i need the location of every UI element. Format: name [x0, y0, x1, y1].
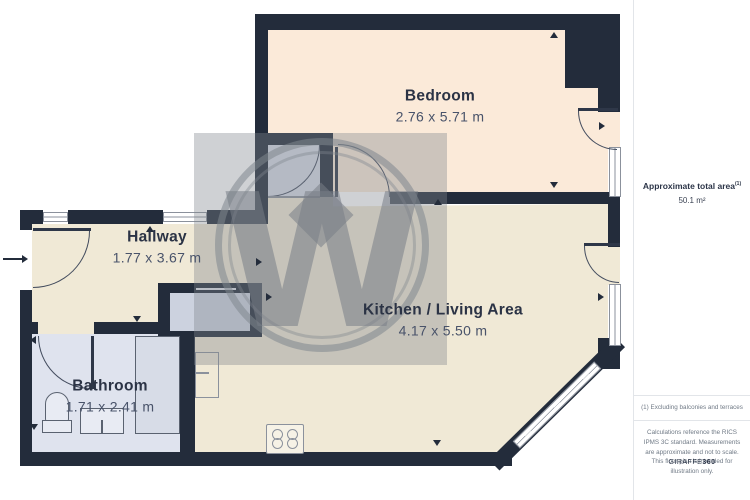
wall-closet-right — [320, 145, 333, 197]
wall-left-outer-lower — [20, 290, 32, 466]
marker-bedroom-left — [260, 120, 266, 128]
toilet-tank — [42, 420, 72, 433]
brand-suffix: 360 — [702, 459, 715, 466]
wall-bedroom-topright-block — [565, 14, 620, 88]
sidebar-divider-2 — [634, 420, 750, 421]
total-area-label: Approximate total area(1) — [634, 181, 750, 191]
marker-kitchen-bottom — [433, 440, 441, 446]
hallway-label: Hallway 1.77 x 3.67 m — [113, 229, 202, 266]
info-sidebar: Approximate total area(1) 50.1 m² (1) Ex… — [633, 0, 750, 500]
bedroom-window — [609, 147, 621, 197]
kitchen-label: Kitchen / Living Area 4.17 x 5.50 m — [363, 302, 523, 339]
wall-closet-top — [255, 133, 333, 145]
bathroom-dimensions: 1.71 x 2.41 m — [66, 399, 155, 415]
kitchen-window — [609, 284, 621, 346]
marker-bathroom-left — [30, 336, 36, 344]
marker-bedroom-right — [599, 122, 605, 130]
wall-left-outer-upper — [20, 210, 32, 230]
sidebar-footnote: (1) Excluding balconies and terraces — [634, 404, 750, 411]
closet-threshold-line — [268, 196, 320, 198]
hallway-window-small — [43, 212, 68, 222]
marker-kitchen-left-2 — [266, 293, 272, 301]
bedroom-name: Bedroom — [396, 88, 485, 106]
hob-burner — [272, 438, 283, 449]
sidebar-disclaimer: Calculations reference the RICS IPMS 3C … — [634, 428, 750, 477]
wall-bottom — [20, 452, 512, 466]
hob-burner — [287, 438, 298, 449]
brand-logo: GIRAFFE360 — [634, 459, 750, 466]
hallway-name: Hallway — [113, 229, 202, 247]
bathroom-label: Bathroom 1.71 x 2.41 m — [66, 378, 155, 415]
kitchen-name: Kitchen / Living Area — [363, 302, 523, 320]
marker-kitchen-right — [598, 293, 604, 301]
wall-hallway-top-b — [68, 210, 163, 224]
total-area-value: 50.1 m² — [634, 196, 750, 205]
bathroom-door-threshold — [38, 322, 94, 334]
fridge-unit — [195, 352, 219, 398]
floorplan-page: { "rooms": { "bedroom": { "name": "Bedro… — [0, 0, 750, 500]
wall-bathroom-kitchen — [180, 322, 195, 455]
kitchen-dimensions: 4.17 x 5.50 m — [363, 323, 523, 339]
entrance-arrow-icon — [22, 255, 28, 263]
hallway-dimensions: 1.77 x 3.67 m — [113, 250, 202, 266]
marker-bedroom-top — [550, 32, 558, 38]
total-area-superscript: (1) — [735, 181, 741, 187]
hallway-window-large — [163, 212, 207, 222]
marker-kitchen-left — [256, 258, 262, 266]
marker-bedroom-bottom — [550, 182, 558, 188]
entrance-arrow-line — [3, 258, 22, 260]
wall-bedroom-bottom — [390, 192, 612, 204]
wall-bedroom-left — [255, 14, 268, 224]
marker-kitchen-top — [434, 199, 442, 205]
bathroom-name: Bathroom — [66, 378, 155, 396]
fridge-handle-line — [195, 372, 209, 374]
bedroom-dimensions: 2.76 x 5.71 m — [396, 109, 485, 125]
marker-bathroom-bottom — [30, 424, 38, 430]
wall-bedroom-top — [255, 14, 575, 30]
marker-hallway-bottom — [133, 316, 141, 322]
sidebar-divider-1 — [634, 395, 750, 396]
total-area-text: Approximate total area — [643, 181, 735, 191]
bedroom-label: Bedroom 2.76 x 5.71 m — [396, 88, 485, 125]
brand-name: GIRAFFE — [668, 459, 702, 466]
wall-hallway-top-c — [207, 210, 267, 224]
wardrobe-door-track — [196, 288, 236, 290]
sink-drain-line — [101, 420, 103, 434]
hob — [266, 424, 304, 454]
passage-floor — [268, 197, 333, 227]
wall-bathroom-top-a — [20, 322, 38, 334]
wardrobe-interior — [170, 293, 250, 331]
